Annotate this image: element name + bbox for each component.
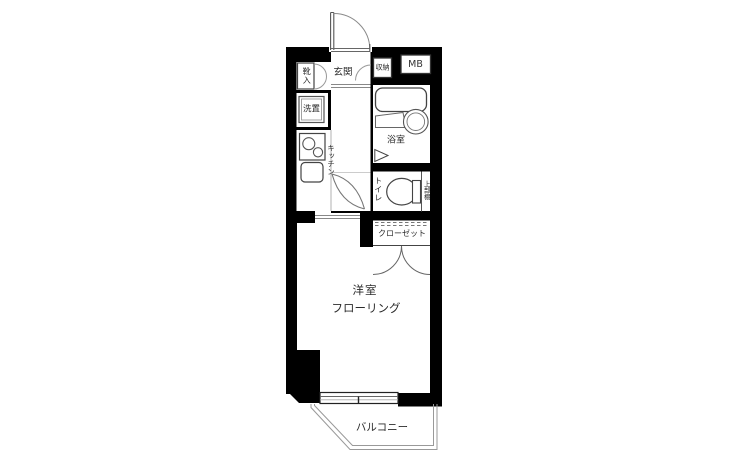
balcony-label: バルコニー [356, 422, 408, 433]
toilet-label: トイレ [373, 176, 381, 202]
wall-bottom-right-block [398, 394, 442, 407]
wall-column-closet [360, 211, 373, 247]
floorplan-drawing [0, 0, 730, 470]
bathtub [376, 88, 427, 112]
wall-bottom-left-block [286, 350, 320, 403]
kitchen-sink [301, 163, 323, 183]
corridor-area [331, 88, 371, 211]
shoe-cabinet-label: 靴入 [302, 67, 310, 85]
laundry-label: 洗置 [303, 105, 320, 114]
genkan-label: 玄関 [333, 68, 352, 78]
window-details [320, 393, 398, 404]
upper-shelf-label: 上部棚 [422, 180, 429, 200]
wall-room-left [286, 211, 315, 223]
flooring-label: フローリング [332, 302, 401, 314]
bathroom-label: 浴室 [387, 136, 405, 145]
toilet-cistern [413, 181, 421, 204]
floorplan-image: 玄関 靴入 収納 MB 洗置 キッチン 浴室 トイレ 上部棚 クローゼット 洋室… [0, 0, 730, 470]
kitchen-label: キッチン [327, 144, 335, 176]
closet-label: クローゼット [378, 230, 426, 238]
meter-box-label: MB [408, 60, 423, 70]
storage-label: 収納 [376, 64, 390, 71]
room-label: 洋室 [353, 284, 378, 296]
